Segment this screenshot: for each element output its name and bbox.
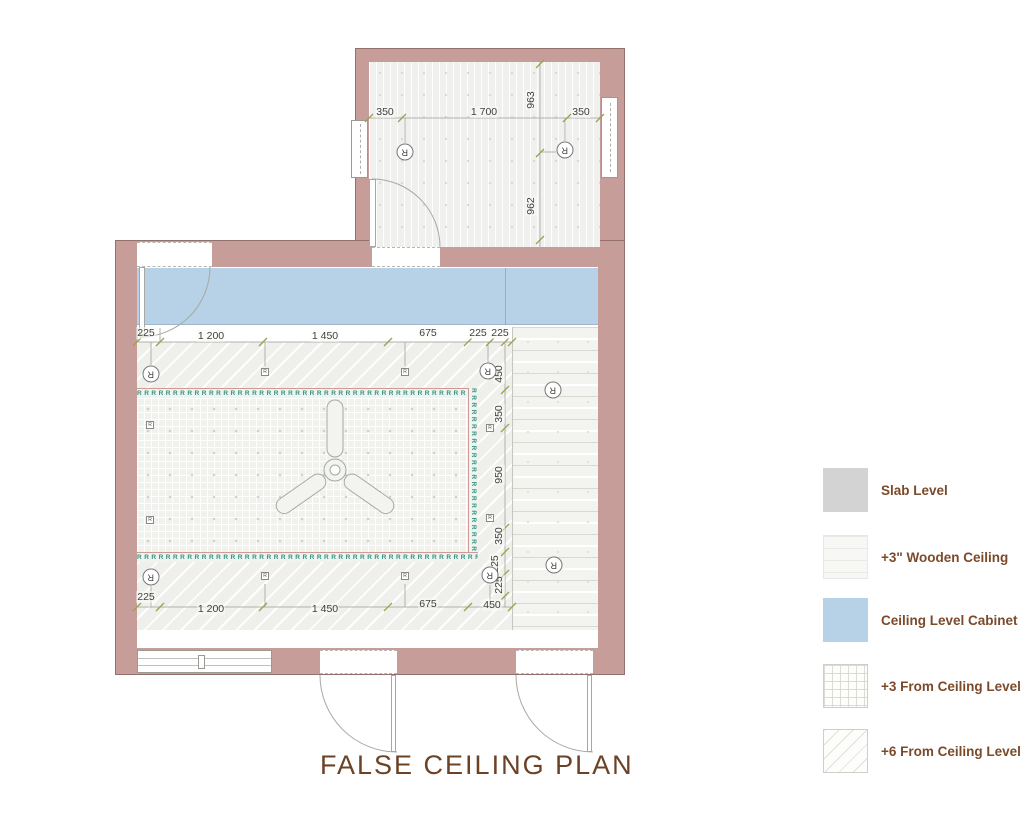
dimension-label: 1 200 (197, 603, 225, 615)
legend-item-ceiling-cabinet: Ceiling Level Cabinet (823, 598, 1018, 642)
legend-item-plus3-level: +3 From Ceiling Level (823, 664, 1021, 708)
dimension-label: 962 (525, 196, 537, 216)
legend-label: Ceiling Level Cabinet (881, 613, 1018, 628)
dimension-label: 1 700 (470, 106, 498, 118)
dimension-label: 350 (493, 526, 505, 546)
spot-light-marker: R (261, 368, 269, 376)
recessed-light-marker: R (397, 144, 414, 161)
spot-light-marker: R (401, 368, 409, 376)
dimension-label: 963 (525, 90, 537, 110)
dimension-label: 350 (571, 106, 591, 118)
legend-item-slab-level: Slab Level (823, 468, 948, 512)
wooden-ceiling-swatch (823, 535, 868, 579)
recessed-light-marker: R (480, 363, 497, 380)
legend-item-wooden-ceiling: +3" Wooden Ceiling (823, 535, 1008, 579)
spot-light-marker: R (486, 514, 494, 522)
page-title: FALSE CEILING PLAN (320, 750, 634, 781)
dimension-label: 675 (418, 327, 438, 339)
plus6-level-swatch (823, 729, 868, 773)
dimension-label: 450 (482, 599, 502, 611)
recessed-light-marker: R (143, 366, 160, 383)
dimension-label: 1 450 (311, 603, 339, 615)
legend-label: +3 From Ceiling Level (881, 679, 1021, 694)
dimension-label: 225 (490, 327, 510, 339)
recessed-light-marker: R (557, 142, 574, 159)
ceiling-cabinet-swatch (823, 598, 868, 642)
dimension-label: 1 200 (197, 330, 225, 342)
legend-label: +3" Wooden Ceiling (881, 550, 1008, 565)
ceiling-fan (273, 400, 397, 517)
legend-label: +6 From Ceiling Level (881, 744, 1021, 759)
dimension-label: 675 (418, 598, 438, 610)
dimension-label: 350 (493, 404, 505, 424)
legend-label: Slab Level (881, 483, 948, 498)
spot-light-marker: R (486, 424, 494, 432)
recessed-light-marker: R (482, 567, 499, 584)
recessed-light-marker: R (143, 569, 160, 586)
dimension-label: 225 (468, 327, 488, 339)
false-ceiling-plan-canvas: RRRRRRRRRRRRRRRRRRRRRRRRRRRRRRRRRRRRRRRR… (0, 0, 1024, 819)
dimension-label: 350 (375, 106, 395, 118)
spot-light-marker: R (146, 421, 154, 429)
dimension-label: 950 (493, 465, 505, 485)
dimension-label: 1 450 (311, 330, 339, 342)
dimension-label: 225 (136, 591, 156, 603)
plus3-level-swatch (823, 664, 868, 708)
door-swing-arcs (140, 179, 593, 752)
spot-light-marker: R (261, 572, 269, 580)
spot-light-marker: R (401, 572, 409, 580)
slab-level-swatch (823, 468, 868, 512)
dimension-label: 225 (136, 327, 156, 339)
legend-item-plus6-level: +6 From Ceiling Level (823, 729, 1021, 773)
recessed-light-marker: R (546, 557, 563, 574)
recessed-light-marker: R (545, 382, 562, 399)
spot-light-marker: R (146, 516, 154, 524)
